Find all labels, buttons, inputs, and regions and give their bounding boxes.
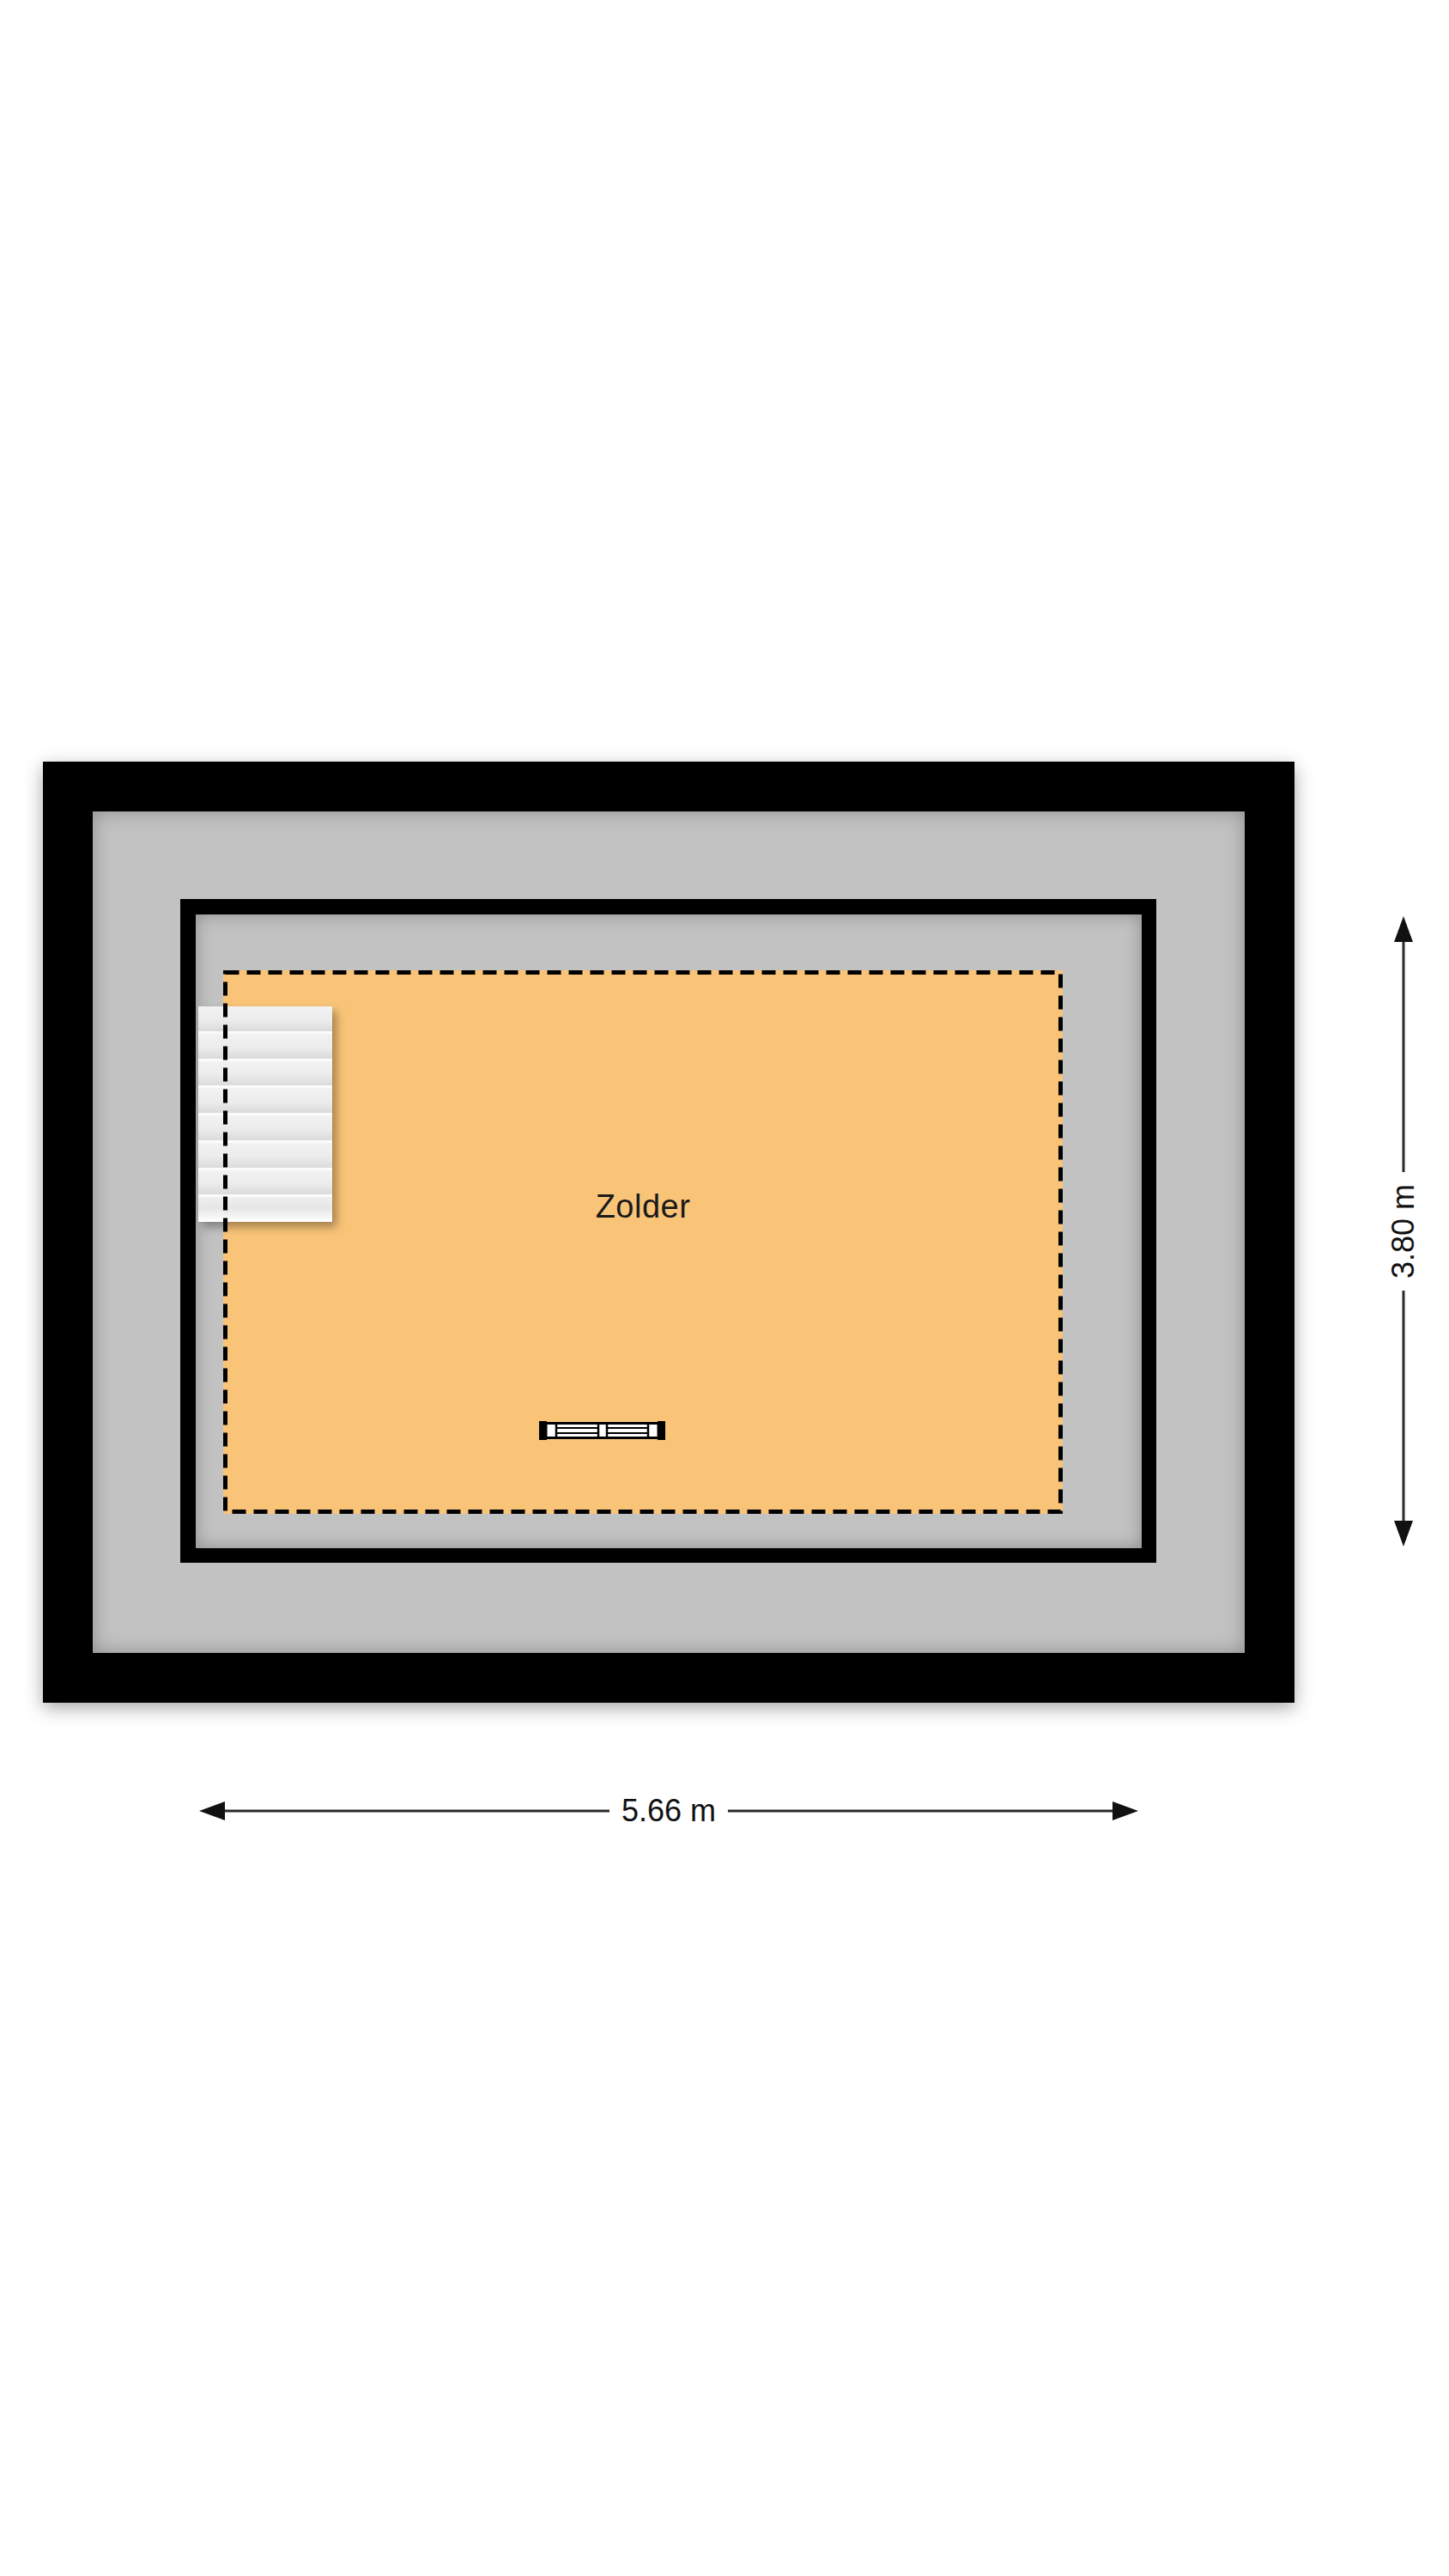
- width-dimension-label: 5.66 m: [609, 1793, 728, 1829]
- room-label: Zolder: [223, 1189, 1063, 1224]
- stair-step: [198, 1061, 332, 1089]
- stair-step: [198, 1006, 332, 1034]
- floorplan-canvas: Zolder: [43, 762, 1294, 1703]
- radiator-icon: [539, 1421, 665, 1440]
- stair-step: [198, 1143, 332, 1170]
- height-dimension-label: 3.80 m: [1385, 1172, 1422, 1291]
- width-dimension: 5.66 m: [197, 1792, 1140, 1830]
- height-dimension: 3.80 m: [1385, 914, 1422, 1548]
- stair-step: [198, 1115, 332, 1143]
- stair-step: [198, 1034, 332, 1061]
- floorplan-page: Zolder 5.66 m 3.80 m: [0, 0, 1449, 2576]
- stair-step: [198, 1088, 332, 1115]
